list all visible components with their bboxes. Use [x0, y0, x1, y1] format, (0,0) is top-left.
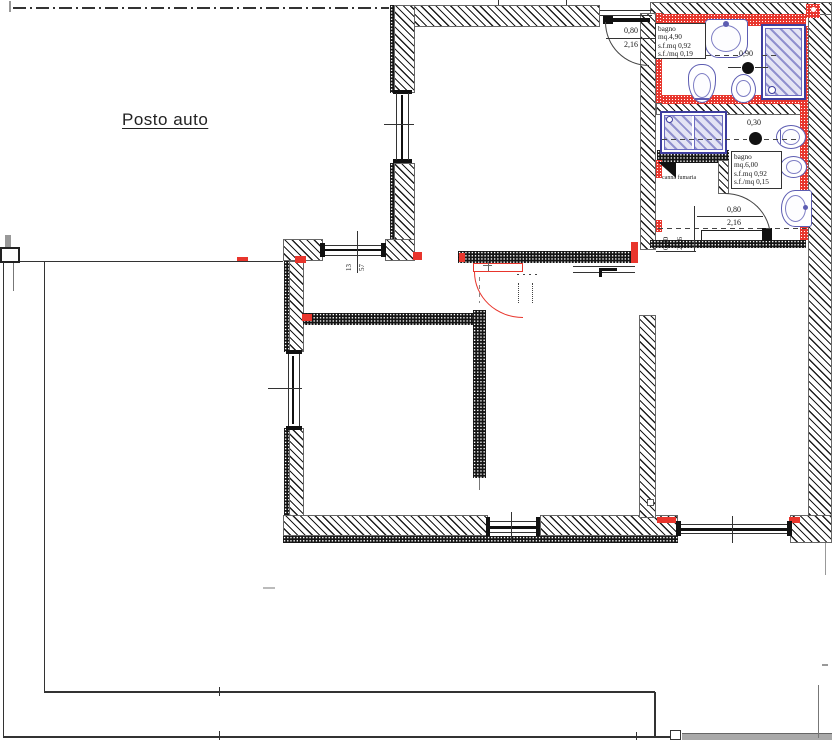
window-bottom2-glass	[681, 528, 787, 531]
window-upleft-line-b	[408, 93, 409, 160]
property-dashdot-line	[13, 7, 389, 9]
dim-b2door-h: 2,16	[710, 218, 758, 228]
sink-bagno1-bowl	[711, 25, 741, 52]
boundary-line-top	[20, 261, 283, 262]
toilet-bagno2-seatline	[780, 130, 781, 144]
wall-upleft-a	[394, 5, 415, 93]
dim-b2door-w-rot: 0,80	[661, 216, 671, 250]
boundary-corner-stub	[9, 1, 11, 12]
dim-b2door-h-rot: 2,16	[675, 216, 685, 250]
dim-b1-090: 0,90	[739, 49, 753, 59]
bidet-bagno1-bowl	[736, 80, 751, 97]
window-upleft-tick	[384, 124, 414, 125]
boundary-line-bottom	[3, 736, 671, 738]
wall-leftroom-east-cap	[479, 478, 480, 490]
wall-upleft-b	[394, 163, 415, 245]
red-jamb-window	[295, 256, 306, 263]
dim-b1-dash-b	[762, 55, 778, 56]
window-bottom1-line-b	[490, 532, 536, 533]
stray-tick	[263, 587, 275, 589]
window-left-line-b	[299, 354, 300, 426]
toilet-bagno2-bowl	[782, 129, 800, 145]
shower-bagno2-drain	[666, 116, 673, 123]
boundary-band-bottom-right	[682, 733, 832, 740]
window-left-line-a	[288, 354, 289, 426]
bagno1-line4: s.f./mq 0,19	[658, 50, 703, 58]
door-hall-leaf	[473, 263, 523, 272]
red-jamb-hall-b	[631, 242, 638, 263]
bagno2-label-box: bagno mq.6,00 s.f.mq 0,92 s.f./mq 0,15	[731, 151, 782, 189]
dim-b2door-vline	[694, 206, 695, 252]
tick-courtyard-a	[219, 687, 220, 696]
window-north-block-b	[381, 243, 386, 257]
wall-hall-north	[458, 251, 633, 263]
door-pocket-line-a	[573, 266, 635, 267]
wall-leftroom-north	[303, 313, 483, 325]
door-hall-dots-b	[532, 283, 533, 303]
sink-bagno1-faucet	[723, 21, 729, 27]
window-left-glass	[292, 356, 294, 424]
boundary-stub-2	[13, 263, 14, 291]
window-left-sill-bot	[286, 426, 302, 430]
gate-box	[0, 247, 20, 263]
window-upleft-line-a	[396, 93, 397, 160]
floor-plan: Posto auto	[0, 0, 832, 740]
dim-b1-dot	[742, 62, 754, 74]
wall-notch	[647, 499, 654, 506]
window-bottom1-tick	[511, 512, 512, 543]
red-corner-dot	[811, 7, 816, 12]
door-bagno1-threshold-a	[600, 10, 652, 11]
tick-courtyard-b	[219, 731, 220, 740]
dim-b1door-w: 0,80	[608, 26, 654, 36]
window-bottom2-line-b	[681, 533, 787, 534]
right-boundary-lower	[818, 685, 819, 738]
hall-step-mark-h	[483, 265, 492, 266]
courtyard-line-bottom	[44, 691, 655, 693]
dim-b2-030: 0,30	[747, 118, 761, 128]
wall-bagno2-south	[650, 240, 806, 248]
window-bottom2-tick	[732, 516, 733, 543]
wall-bagno2-inner	[718, 160, 729, 194]
door-hall-dots-c	[517, 274, 537, 275]
door-hall-dots-a	[518, 283, 519, 303]
flue-label: canna fumaria	[662, 174, 696, 182]
wall-bottom-a	[283, 515, 488, 536]
bagno2-line4: s.f./mq 0,15	[734, 178, 779, 186]
boundary-line-left	[3, 262, 4, 737]
window-north-dim-bot: 57	[357, 245, 367, 271]
red-jamb-bottom-a	[657, 517, 676, 523]
red-jamb-leftroom	[302, 314, 312, 321]
tick-courtyard-c	[636, 732, 637, 740]
dim-b2-dash-b	[764, 139, 800, 140]
bidet-bagno2-bowl	[786, 160, 802, 174]
door-pocket-line-b	[573, 272, 635, 273]
wall-top-left	[390, 5, 600, 27]
boundary-bottom-square	[670, 730, 681, 740]
window-bottom2-line-a	[681, 524, 787, 525]
window-bottom1-line-a	[490, 521, 536, 522]
sink-bagno2-faucet	[803, 205, 808, 210]
dim-b2door-baseline	[656, 251, 696, 252]
dim-b1door-h: 2,16	[608, 40, 654, 50]
bagno1-label-box: bagno mq.4,90 s.f.mq 0,92 s.f./mq 0,19	[655, 23, 706, 59]
dim-b1-dash-a	[706, 55, 738, 56]
window-bottom1-glass	[490, 526, 536, 529]
shower-bagno1-drain	[768, 86, 776, 94]
boundary-red-mark	[237, 257, 248, 261]
dim-b2door-w: 0,80	[710, 205, 758, 215]
window-upleft-glass	[401, 95, 403, 159]
courtyard-line-right	[654, 692, 656, 737]
right-boundary-mark	[822, 664, 828, 666]
window-bottom2-block-b	[787, 521, 792, 536]
courtyard-line-left	[44, 262, 45, 692]
dim-b2door-line	[697, 216, 763, 217]
wall-right	[808, 14, 832, 543]
dim-b1-dot-line-a	[728, 67, 741, 68]
window-left-tick	[268, 388, 302, 389]
toilet-bagno1-bowl	[693, 73, 711, 98]
red-jamb-hall-a	[459, 253, 465, 262]
dim-b1-dot-line-b	[755, 67, 768, 68]
window-bottom1-block-b	[536, 517, 540, 536]
dim-b2-dot	[749, 132, 762, 145]
hall-step-mark-v	[488, 262, 489, 271]
door-bagno2-hinge	[762, 228, 772, 241]
door-hall-dash	[479, 277, 480, 303]
toilet-bagno1-base	[695, 98, 709, 100]
shower-bagno2-divider	[692, 116, 695, 149]
window-north-dim-top: 13	[344, 245, 354, 271]
right-boundary-upper	[825, 543, 826, 575]
wall-north-east	[385, 239, 415, 261]
dim-b1door-line	[606, 38, 656, 39]
dim-b2-dash-a	[662, 139, 747, 140]
wall-rightroom-west	[639, 315, 656, 518]
door-pocket-handle-v	[599, 268, 602, 277]
posto-auto-label: Posto auto	[122, 110, 208, 130]
red-jamb-upleft	[413, 252, 422, 260]
wall-bottom-face	[283, 536, 678, 543]
wall-leftroom-east	[473, 310, 486, 478]
wall-left-a	[289, 261, 304, 352]
